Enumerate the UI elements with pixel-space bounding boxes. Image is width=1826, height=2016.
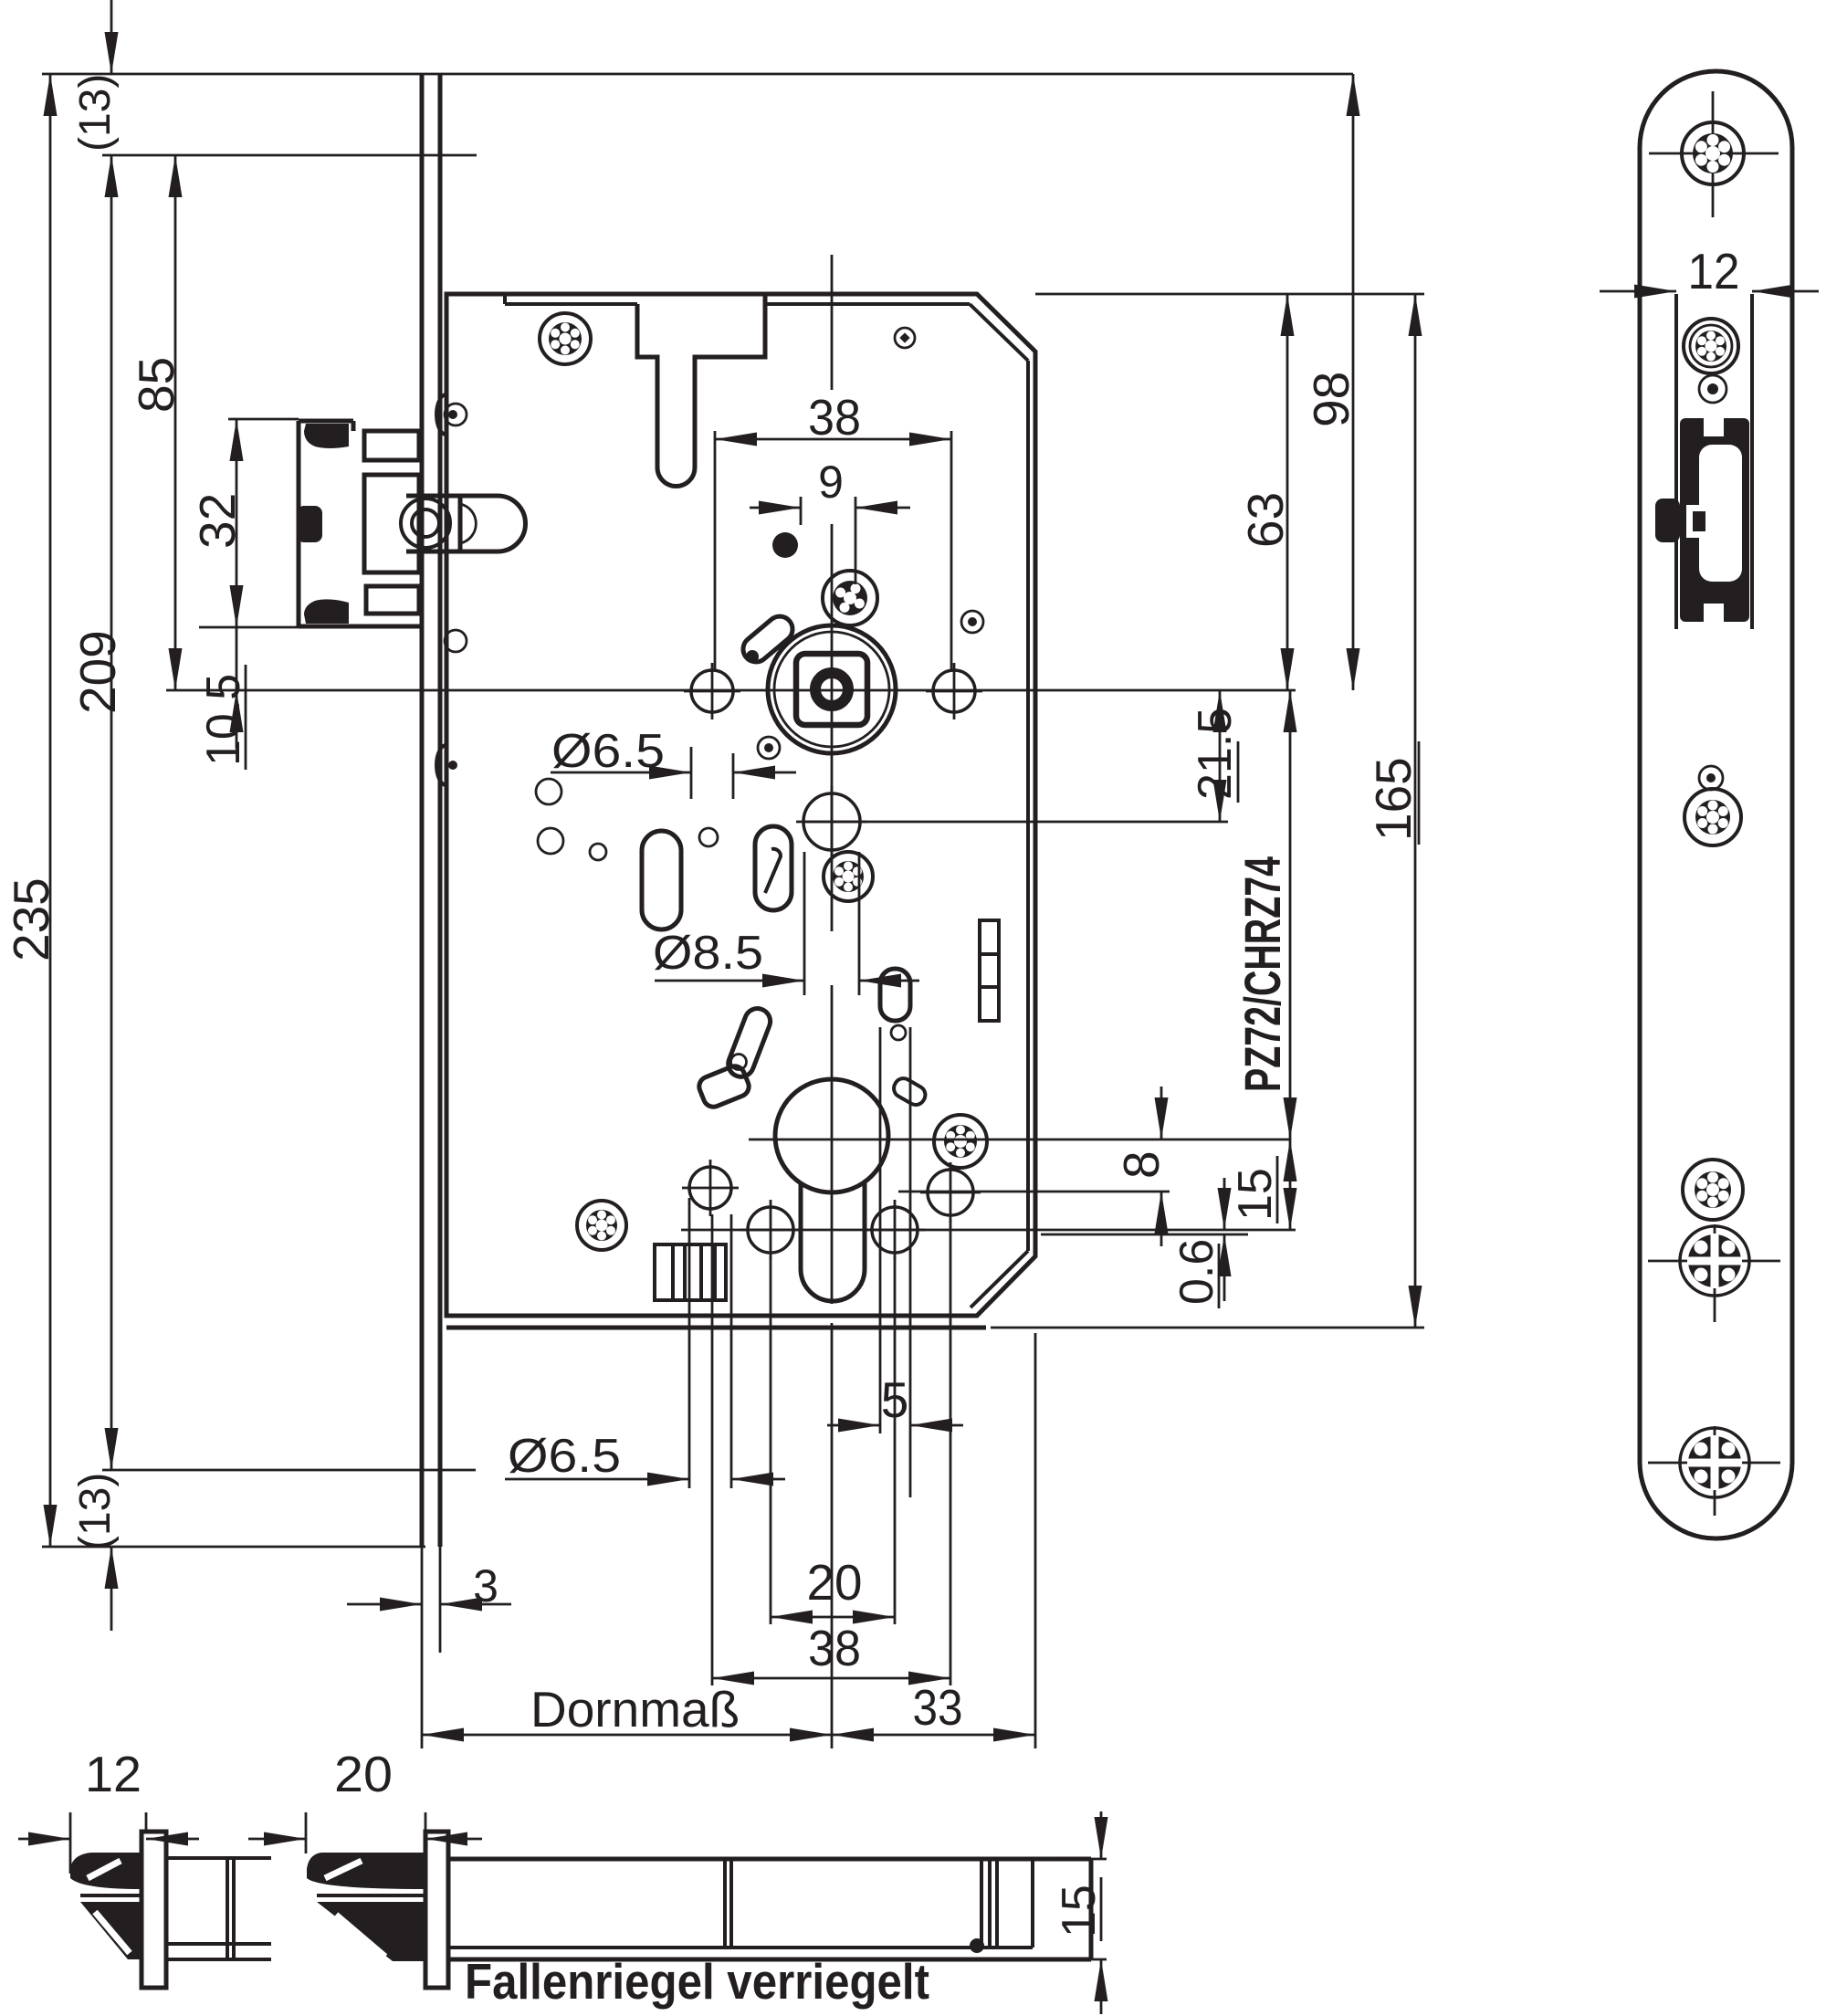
svg-text:20: 20	[334, 1746, 393, 1802]
svg-text:15: 15	[1053, 1885, 1106, 1937]
svg-text:(13): (13)	[71, 74, 120, 152]
svg-text:209: 209	[69, 630, 126, 714]
svg-text:165: 165	[1365, 757, 1422, 841]
svg-text:12: 12	[1688, 243, 1740, 299]
svg-text:15: 15	[1229, 1168, 1282, 1221]
svg-text:63: 63	[1237, 492, 1294, 548]
svg-text:8: 8	[1113, 1150, 1170, 1179]
svg-text:3: 3	[473, 1560, 498, 1612]
svg-text:Ø6.5: Ø6.5	[508, 1430, 621, 1483]
svg-text:9: 9	[818, 457, 844, 508]
svg-text:98: 98	[1303, 372, 1359, 427]
svg-text:0.6: 0.6	[1170, 1239, 1223, 1305]
svg-text:235: 235	[3, 877, 59, 961]
svg-text:38: 38	[808, 389, 861, 446]
svg-text:Fallenriegel verriegelt: Fallenriegel verriegelt	[465, 1953, 929, 2010]
svg-text:Ø6.5: Ø6.5	[551, 725, 665, 778]
svg-text:10.5: 10.5	[197, 674, 250, 766]
svg-text:33: 33	[913, 1679, 963, 1736]
svg-text:32: 32	[189, 493, 246, 549]
svg-text:(13): (13)	[71, 1473, 120, 1550]
svg-text:Ø8.5: Ø8.5	[653, 927, 763, 980]
svg-text:38: 38	[808, 1620, 861, 1676]
svg-text:85: 85	[128, 357, 184, 413]
svg-text:Dornmaß: Dornmaß	[530, 1681, 740, 1738]
svg-text:21.5: 21.5	[1189, 708, 1242, 800]
svg-text:12: 12	[85, 1746, 142, 1802]
svg-text:20: 20	[807, 1554, 863, 1611]
svg-text:PZ72/CHRZ74: PZ72/CHRZ74	[1233, 856, 1291, 1092]
